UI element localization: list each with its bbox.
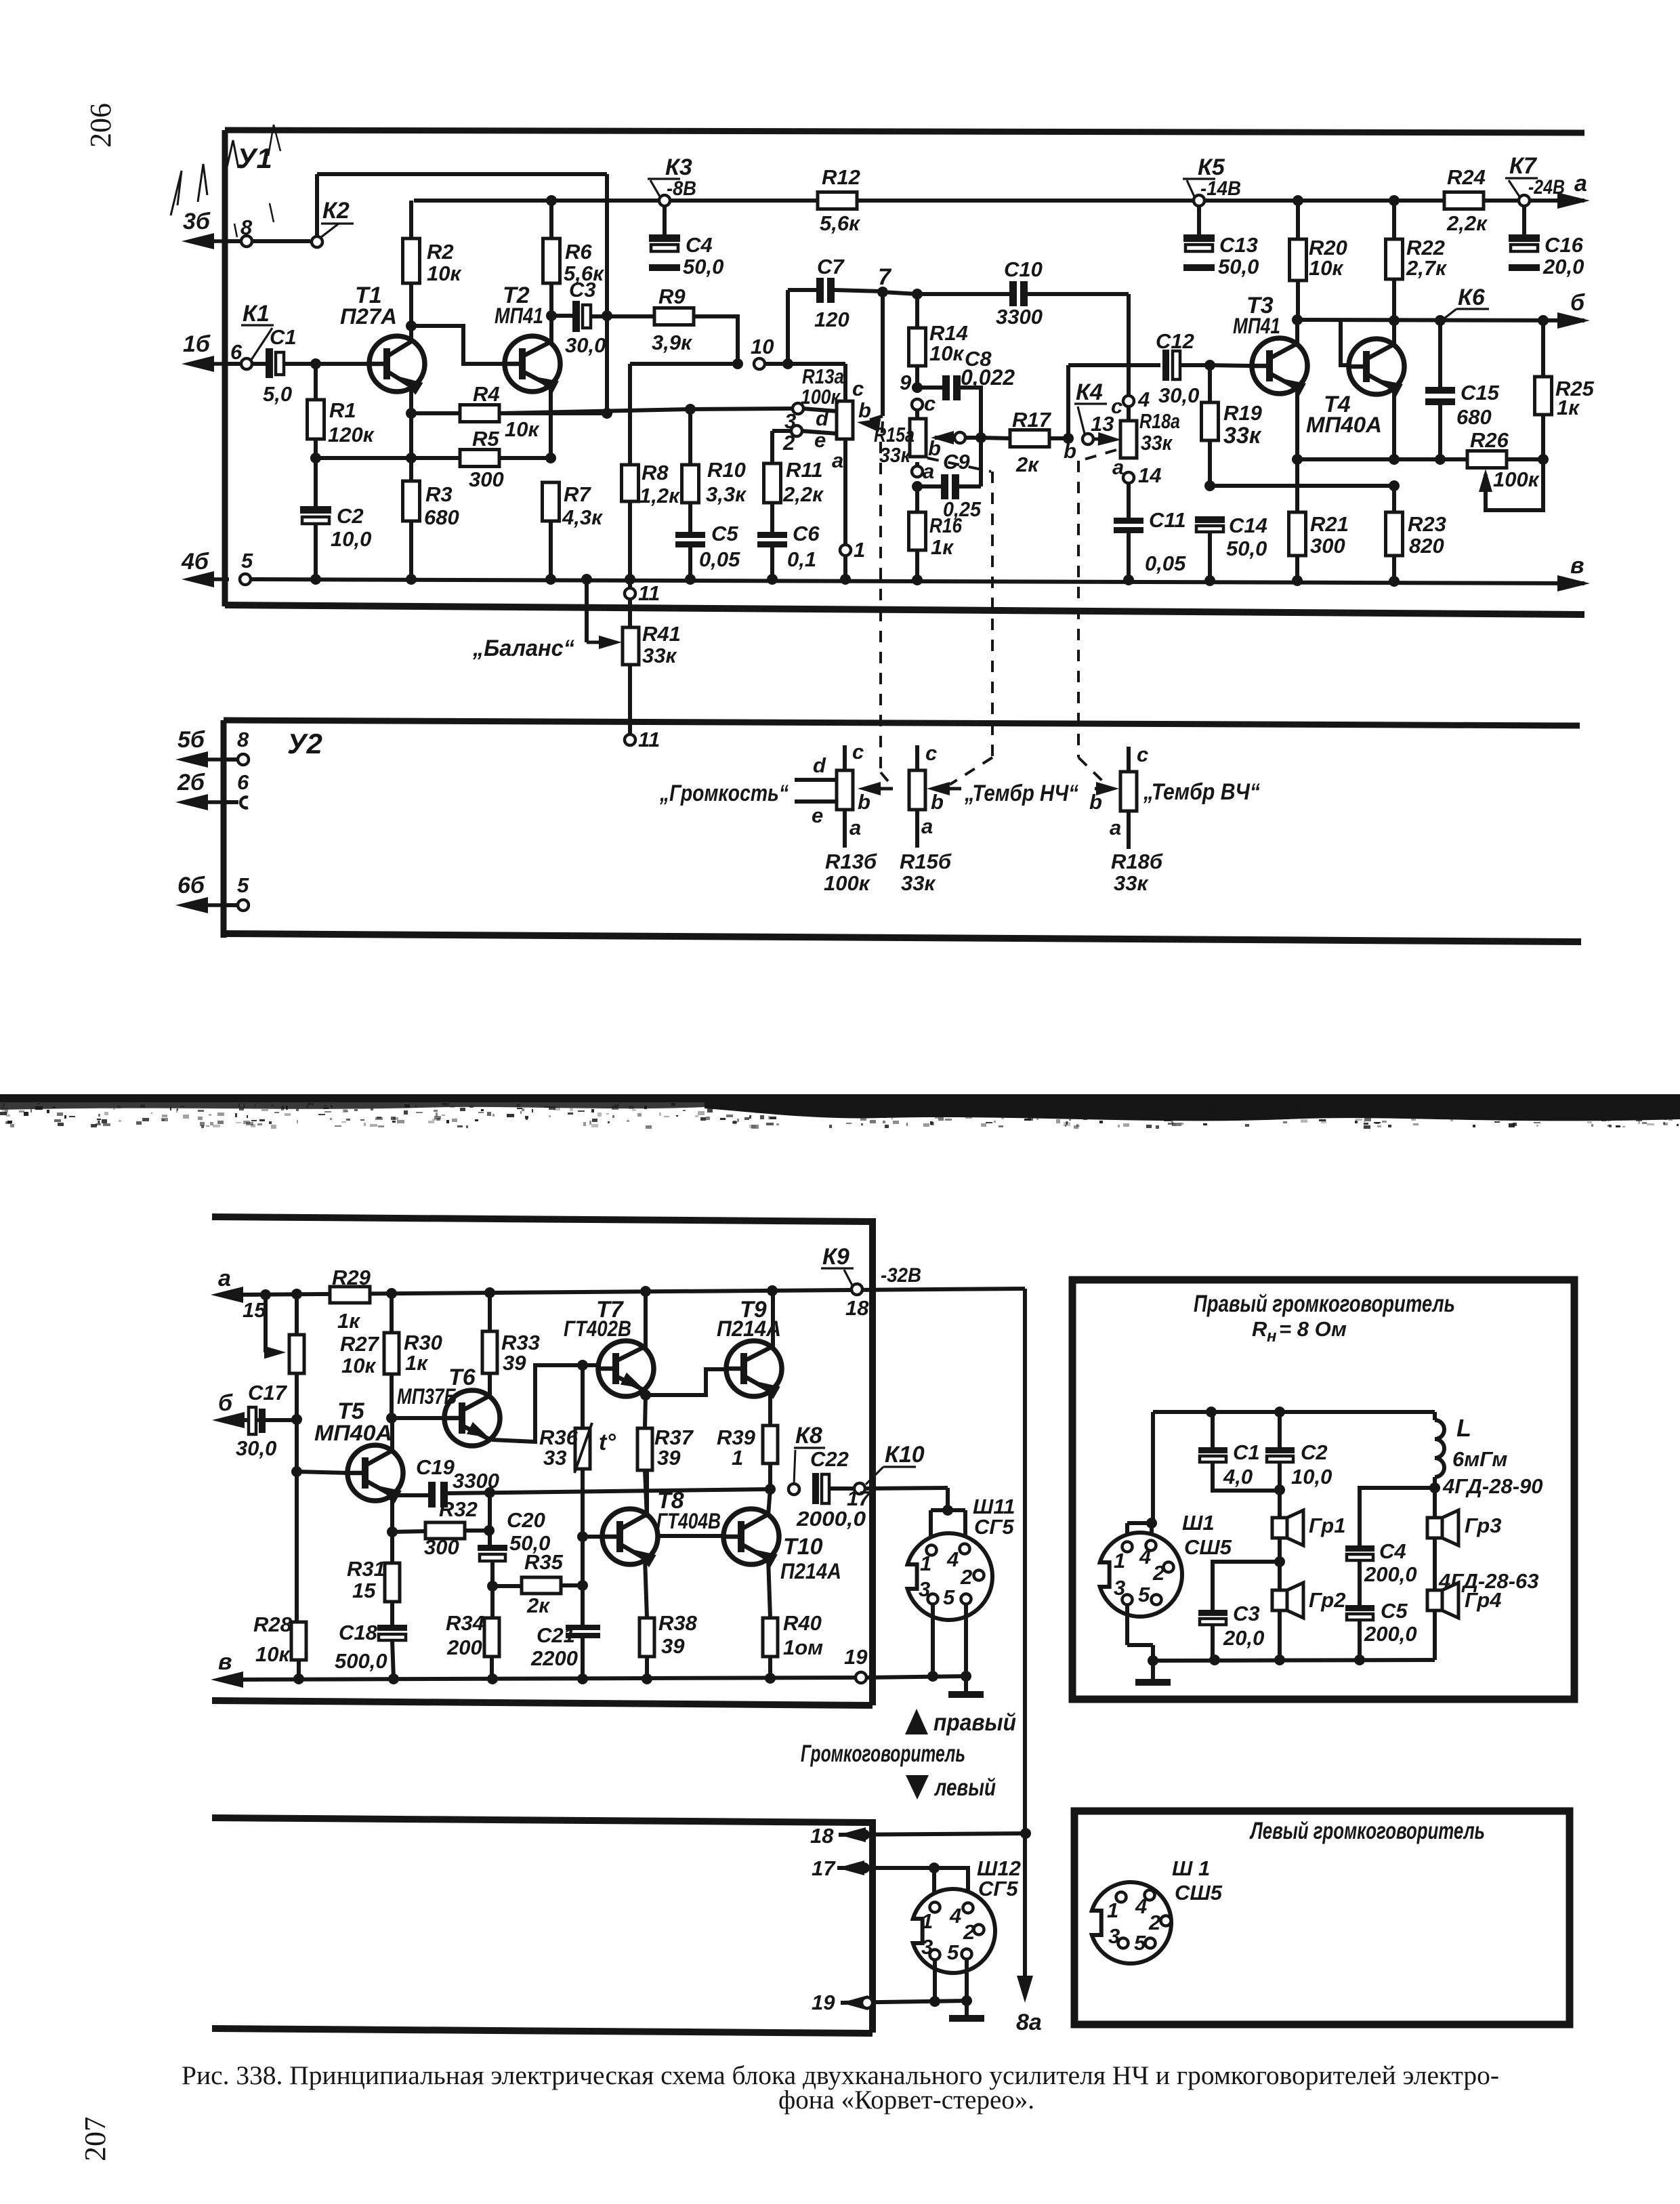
svg-text:С3: С3: [1233, 1602, 1260, 1625]
svg-text:15: 15: [243, 1298, 266, 1322]
svg-text:С4: С4: [686, 233, 713, 257]
svg-text:R34: R34: [446, 1611, 484, 1635]
svg-text:0,05: 0,05: [1145, 552, 1186, 575]
svg-text:0,022: 0,022: [961, 365, 1015, 390]
svg-text:1: 1: [1114, 1549, 1125, 1573]
svg-text:1: 1: [854, 538, 865, 562]
svg-text:11: 11: [638, 728, 660, 751]
svg-text:3б: 3б: [183, 209, 211, 234]
svg-text:2: 2: [960, 1565, 972, 1589]
svg-text:С19: С19: [416, 1455, 455, 1479]
svg-text:К3: К3: [665, 154, 692, 180]
svg-text:К1: К1: [243, 301, 270, 327]
svg-text:С12: С12: [1156, 329, 1194, 353]
svg-text:300: 300: [424, 1535, 459, 1559]
svg-text:К4: К4: [1076, 379, 1103, 405]
svg-text:8: 8: [240, 215, 253, 239]
svg-text:5: 5: [943, 1585, 955, 1609]
svg-text:10: 10: [751, 335, 774, 358]
svg-text:R41: R41: [642, 622, 681, 646]
svg-text:= 8 Ом: = 8 Ом: [1279, 1317, 1347, 1341]
svg-text:207: 207: [79, 2117, 112, 2161]
svg-text:680: 680: [1456, 405, 1492, 429]
svg-text:СГ5: СГ5: [978, 1877, 1018, 1900]
svg-text:b: b: [931, 790, 944, 814]
svg-text:300: 300: [469, 467, 504, 491]
svg-text:С5: С5: [1381, 1599, 1408, 1623]
svg-text:4: 4: [946, 1547, 959, 1571]
svg-text:15: 15: [352, 1579, 376, 1602]
svg-text:2б: 2б: [177, 770, 205, 795]
svg-text:С16: С16: [1545, 233, 1584, 257]
svg-text:1: 1: [1107, 1898, 1118, 1922]
svg-text:5,6к: 5,6к: [820, 211, 860, 235]
svg-text:10,0: 10,0: [1291, 1465, 1332, 1489]
svg-text:3: 3: [919, 1577, 930, 1601]
svg-text:2,2к: 2,2к: [1446, 211, 1488, 235]
svg-text:33к: 33к: [879, 443, 911, 467]
svg-text:R8: R8: [642, 461, 669, 484]
svg-text:R11: R11: [786, 458, 823, 482]
svg-text:б: б: [218, 1390, 233, 1416]
svg-text:17: 17: [812, 1856, 836, 1880]
svg-text:0,05: 0,05: [699, 547, 740, 571]
svg-text:18: 18: [810, 1824, 834, 1848]
svg-text:4б: 4б: [181, 549, 209, 575]
svg-text:Гр4: Гр4: [1465, 1588, 1501, 1612]
svg-text:R3: R3: [425, 482, 453, 506]
svg-text:R27: R27: [340, 1332, 380, 1356]
svg-text:R29: R29: [332, 1266, 371, 1289]
svg-text:t°: t°: [599, 1430, 616, 1455]
svg-text:20,0: 20,0: [1542, 255, 1584, 278]
svg-text:-8В: -8В: [667, 178, 696, 200]
svg-text:9: 9: [900, 371, 912, 394]
svg-text:10к: 10к: [255, 1642, 290, 1666]
svg-text:1: 1: [732, 1446, 743, 1470]
svg-text:a: a: [923, 459, 934, 483]
svg-text:10к: 10к: [505, 417, 539, 441]
svg-text:39: 39: [503, 1351, 526, 1375]
svg-text:СШ5: СШ5: [1184, 1535, 1232, 1559]
svg-text:R6: R6: [565, 240, 592, 264]
svg-text:в: в: [1570, 553, 1584, 579]
svg-text:7: 7: [878, 264, 892, 290]
svg-text:b: b: [858, 398, 871, 422]
svg-text:R10: R10: [707, 458, 746, 482]
svg-text:100к: 100к: [824, 871, 870, 895]
svg-text:b: b: [858, 790, 870, 814]
svg-text:„Баланс“: „Баланс“: [472, 636, 574, 661]
svg-text:1к: 1к: [1557, 396, 1580, 419]
svg-text:c: c: [1111, 394, 1122, 418]
svg-text:c: c: [852, 377, 864, 400]
svg-text:500,0: 500,0: [335, 1649, 387, 1673]
svg-text:30,0: 30,0: [565, 333, 606, 357]
svg-text:11: 11: [638, 581, 660, 605]
svg-text:R13б: R13б: [825, 850, 877, 873]
svg-text:1: 1: [921, 1909, 933, 1933]
svg-text:R18б: R18б: [1111, 850, 1163, 873]
svg-text:R7: R7: [564, 482, 591, 506]
svg-text:206: 206: [84, 103, 117, 148]
svg-text:d: d: [813, 753, 826, 777]
svg-text:а: а: [1574, 171, 1587, 196]
svg-text:33к: 33к: [1223, 423, 1262, 449]
svg-text:R18а: R18а: [1139, 409, 1180, 433]
svg-text:R1: R1: [329, 398, 356, 422]
svg-text:R40: R40: [783, 1611, 822, 1635]
svg-text:Гр1: Гр1: [1309, 1514, 1345, 1537]
svg-text:1к: 1к: [337, 1309, 360, 1333]
svg-text:б: б: [1570, 290, 1585, 316]
svg-text:120к: 120к: [328, 423, 375, 446]
svg-text:СГ5: СГ5: [974, 1515, 1014, 1539]
svg-text:3: 3: [1108, 1924, 1120, 1948]
svg-text:правый: правый: [933, 1709, 1016, 1736]
svg-text:С15: С15: [1461, 381, 1500, 404]
svg-text:МП41: МП41: [495, 304, 543, 328]
svg-text:200: 200: [446, 1636, 482, 1659]
svg-text:50,0: 50,0: [683, 255, 723, 278]
svg-text:5б: 5б: [177, 727, 205, 753]
svg-text:R32: R32: [439, 1497, 478, 1521]
svg-text:С5: С5: [711, 522, 738, 545]
svg-text:С2: С2: [1301, 1440, 1328, 1464]
svg-text:3: 3: [921, 1935, 933, 1959]
svg-text:МП41: МП41: [1233, 314, 1280, 338]
svg-text:К9: К9: [822, 1244, 849, 1270]
svg-text:R23: R23: [1408, 512, 1446, 536]
svg-text:18: 18: [845, 1296, 869, 1320]
svg-text:33: 33: [543, 1446, 566, 1470]
svg-text:С20: С20: [507, 1508, 545, 1532]
svg-text:С2: С2: [337, 504, 364, 528]
svg-text:4ГД-28-90: 4ГД-28-90: [1442, 1474, 1543, 1498]
svg-text:50,0: 50,0: [1226, 537, 1267, 560]
svg-text:10,0: 10,0: [331, 527, 371, 551]
svg-text:R17: R17: [1012, 408, 1052, 432]
svg-text:a: a: [1110, 816, 1121, 839]
svg-text:„Громкость“: „Громкость“: [659, 781, 789, 806]
svg-text:С10: С10: [1004, 257, 1043, 281]
svg-text:e: e: [812, 804, 823, 827]
svg-text:R21: R21: [1310, 512, 1349, 536]
svg-text:c: c: [924, 392, 936, 415]
svg-text:4: 4: [1139, 1545, 1151, 1568]
svg-text:c: c: [1137, 743, 1148, 766]
svg-text:680: 680: [424, 505, 459, 529]
svg-text:К2: К2: [322, 198, 350, 224]
svg-text:Гр3: Гр3: [1465, 1514, 1501, 1537]
svg-text:левый: левый: [933, 1774, 996, 1801]
svg-text:c: c: [925, 741, 937, 765]
svg-text:200,0: 200,0: [1364, 1622, 1417, 1646]
svg-text:b: b: [1064, 439, 1076, 463]
svg-text:ГТ402В: ГТ402В: [564, 1316, 631, 1341]
svg-text:2200: 2200: [530, 1646, 578, 1670]
svg-text:1б: 1б: [183, 331, 211, 357]
svg-text:33к: 33к: [1114, 871, 1148, 895]
svg-text:С13: С13: [1219, 233, 1258, 257]
svg-text:R26: R26: [1470, 428, 1509, 452]
svg-text:R16: R16: [929, 514, 963, 537]
svg-text:1,2к: 1,2к: [639, 484, 680, 507]
svg-text:5: 5: [241, 549, 253, 573]
svg-text:Громкоговоритель: Громкоговоритель: [801, 1741, 965, 1767]
svg-text:R15б: R15б: [900, 850, 952, 873]
svg-text:10к: 10к: [1309, 256, 1343, 280]
svg-text:-14В: -14В: [1200, 178, 1241, 200]
svg-text:120: 120: [814, 308, 849, 331]
svg-text:Ш1: Ш1: [1182, 1511, 1215, 1535]
svg-text:R35: R35: [524, 1550, 564, 1574]
svg-text:a: a: [921, 814, 933, 838]
svg-text:6б: 6б: [177, 873, 205, 898]
svg-text:К10: К10: [885, 1442, 925, 1468]
svg-text:R28: R28: [253, 1613, 293, 1636]
svg-text:С1: С1: [1233, 1440, 1260, 1464]
svg-text:2к: 2к: [1015, 453, 1039, 476]
svg-text:Ш 1: Ш 1: [1172, 1856, 1210, 1880]
svg-text:R4: R4: [473, 382, 500, 406]
svg-text:6мГм: 6мГм: [1452, 1447, 1507, 1471]
svg-text:R12: R12: [822, 165, 860, 189]
svg-text:3300: 3300: [996, 305, 1043, 329]
svg-text:820: 820: [1409, 534, 1444, 558]
svg-text:R9: R9: [658, 285, 686, 308]
svg-text:2: 2: [1152, 1561, 1164, 1585]
svg-text:10к: 10к: [427, 262, 461, 285]
svg-text:-24В: -24В: [1528, 176, 1565, 199]
svg-text:6: 6: [230, 340, 243, 364]
svg-text:a: a: [849, 816, 861, 839]
svg-text:С3: С3: [569, 278, 596, 302]
svg-text:33к: 33к: [642, 644, 677, 667]
svg-text:R38: R38: [658, 1611, 698, 1635]
svg-text:2,2к: 2,2к: [782, 482, 824, 506]
svg-text:1ом: 1ом: [783, 1636, 823, 1659]
svg-text:Левый громкоговоритель: Левый громкоговоритель: [1249, 1818, 1485, 1844]
svg-text:МП37Б: МП37Б: [397, 1384, 457, 1409]
svg-text:С22: С22: [810, 1447, 849, 1471]
svg-text:У1: У1: [237, 142, 272, 174]
svg-text:К8: К8: [795, 1423, 822, 1449]
svg-text:С6: С6: [793, 522, 820, 545]
svg-text:R19: R19: [1223, 401, 1263, 425]
svg-text:33к: 33к: [901, 871, 936, 895]
svg-text:С4: С4: [1379, 1539, 1406, 1563]
svg-text:П214А: П214А: [780, 1559, 841, 1583]
svg-text:С1: С1: [270, 325, 297, 349]
svg-text:2: 2: [963, 1920, 975, 1944]
svg-text:33к: 33к: [1141, 431, 1173, 455]
svg-text:фона «Корвет-стерео».: фона «Корвет-стерео».: [778, 2085, 1034, 2115]
svg-text:2: 2: [782, 431, 795, 455]
svg-text:R2: R2: [427, 240, 454, 264]
svg-text:19: 19: [844, 1645, 868, 1669]
svg-text:50,0: 50,0: [1218, 255, 1259, 278]
svg-text:8а: 8а: [1016, 2010, 1042, 2035]
svg-text:Т10: Т10: [783, 1534, 823, 1560]
svg-text:6: 6: [237, 770, 249, 794]
svg-text:30,0: 30,0: [1158, 383, 1199, 407]
svg-text:1к: 1к: [405, 1351, 428, 1375]
svg-text:Гр2: Гр2: [1309, 1588, 1345, 1612]
svg-text:4,0: 4,0: [1223, 1465, 1253, 1489]
svg-text:С11: С11: [1149, 508, 1186, 532]
svg-text:К5: К5: [1198, 154, 1225, 180]
svg-text:10к: 10к: [341, 1354, 376, 1377]
svg-text:10к: 10к: [929, 341, 964, 365]
svg-text:c: c: [852, 740, 864, 764]
svg-text:5: 5: [1138, 1583, 1150, 1606]
svg-text:100к: 100к: [1493, 467, 1540, 491]
svg-text:П27А: П27А: [340, 304, 397, 329]
svg-text:20,0: 20,0: [1223, 1626, 1264, 1650]
svg-text:С17: С17: [248, 1381, 288, 1405]
svg-text:„Тембр ВЧ“: „Тембр ВЧ“: [1143, 779, 1260, 805]
svg-text:3,3к: 3,3к: [706, 482, 747, 506]
svg-text:39: 39: [657, 1446, 681, 1470]
svg-text:14: 14: [1138, 463, 1161, 487]
svg-text:4: 4: [949, 1904, 961, 1928]
svg-text:2,7к: 2,7к: [1406, 256, 1447, 280]
svg-text:С7: С7: [817, 255, 845, 278]
svg-text:39: 39: [661, 1634, 685, 1658]
svg-text:С21: С21: [537, 1623, 575, 1647]
svg-text:2к: 2к: [526, 1594, 550, 1617]
svg-text:R5: R5: [472, 427, 499, 451]
svg-text:2000,0: 2000,0: [796, 1507, 866, 1531]
svg-text:„Тембр НЧ“: „Тембр НЧ“: [964, 781, 1078, 806]
svg-text:ГТ404В: ГТ404В: [656, 1509, 721, 1533]
svg-text:5: 5: [947, 1940, 959, 1964]
svg-text:Правый громкоговоритель: Правый громкоговоритель: [1194, 1291, 1455, 1317]
svg-text:3: 3: [1114, 1576, 1125, 1600]
svg-text:5: 5: [237, 873, 249, 897]
svg-text:С14: С14: [1229, 514, 1267, 537]
svg-text:4: 4: [1137, 388, 1150, 411]
svg-text:0,1: 0,1: [787, 547, 816, 571]
svg-text:СШ5: СШ5: [1175, 1881, 1223, 1905]
svg-text:R: R: [1252, 1317, 1267, 1341]
svg-text:a: a: [832, 449, 843, 472]
svg-text:200,0: 200,0: [1364, 1562, 1417, 1586]
svg-text:С9: С9: [943, 450, 970, 474]
svg-text:а: а: [218, 1266, 231, 1291]
svg-text:У2: У2: [287, 728, 322, 760]
svg-text:К6: К6: [1458, 285, 1486, 310]
svg-text:300: 300: [1310, 534, 1345, 558]
svg-text:19: 19: [812, 1991, 835, 2014]
svg-text:1к: 1к: [931, 535, 954, 559]
svg-text:8: 8: [237, 728, 249, 751]
svg-text:К7: К7: [1509, 153, 1538, 179]
svg-text:С18: С18: [339, 1621, 378, 1644]
svg-text:4,3к: 4,3к: [562, 505, 603, 529]
svg-text:L: L: [1456, 1414, 1471, 1442]
svg-text:1: 1: [920, 1552, 931, 1575]
svg-text:МП40А: МП40А: [1306, 413, 1382, 437]
svg-text:МП40А: МП40А: [314, 1421, 392, 1445]
svg-text:н: н: [1267, 1327, 1277, 1346]
svg-text:3,9к: 3,9к: [652, 331, 692, 354]
svg-text:4: 4: [1135, 1894, 1147, 1918]
svg-text:-32В: -32В: [881, 1264, 921, 1287]
svg-text:5: 5: [1134, 1931, 1146, 1955]
svg-text:30,0: 30,0: [236, 1436, 276, 1460]
svg-text:5,0: 5,0: [263, 382, 292, 406]
svg-text:2: 2: [1148, 1911, 1160, 1934]
svg-text:R31: R31: [347, 1557, 385, 1581]
svg-text:100к: 100к: [801, 385, 841, 409]
svg-text:R24: R24: [1447, 165, 1486, 189]
svg-text:в: в: [218, 1649, 232, 1675]
